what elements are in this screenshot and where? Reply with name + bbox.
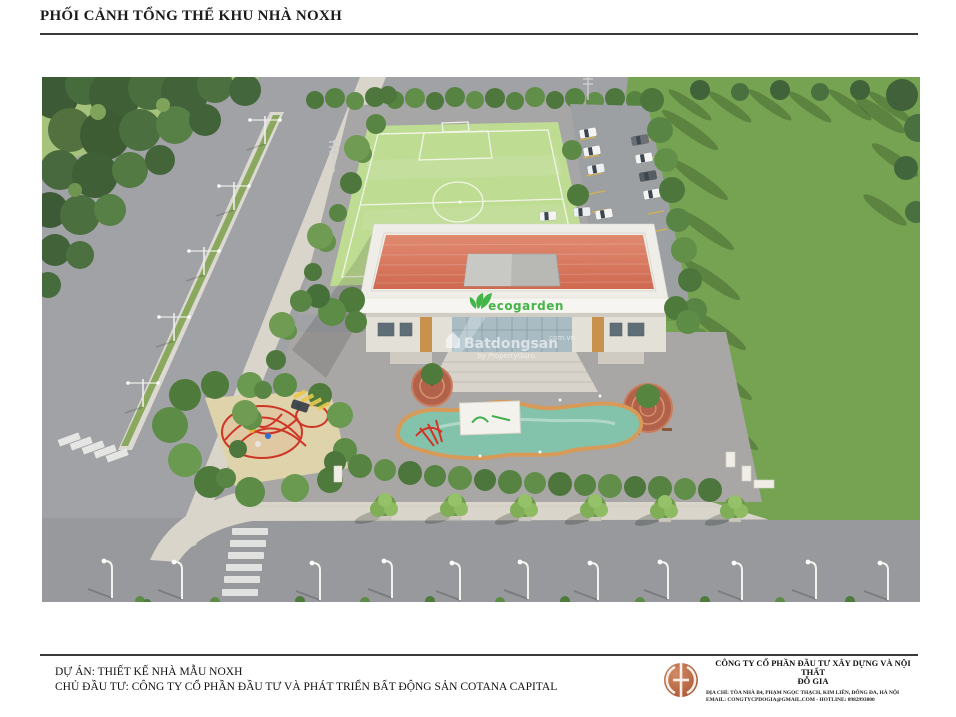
project-line: DỰ ÁN: THIẾT KẾ NHÀ MẪU NOXH xyxy=(55,665,557,680)
wood-panel xyxy=(420,317,432,352)
company-name-line2: ĐỖ GIA xyxy=(706,677,920,686)
company-info: CÔNG TY CỔ PHẦN ĐẦU TƯ XÂY DỰNG VÀ NỘI T… xyxy=(706,659,920,703)
investor-line: CHỦ ĐẦU TƯ: CÔNG TY CỔ PHẦN ĐẦU TƯ VÀ PH… xyxy=(55,680,557,695)
project-info: DỰ ÁN: THIẾT KẾ NHÀ MẪU NOXH CHỦ ĐẦU TƯ:… xyxy=(55,665,557,695)
site-rendering: ecogarden xyxy=(42,77,920,602)
company-contact: EMAIL: CONGTYCPDOGIA@GMAIL.COM - HOTLINE… xyxy=(706,697,920,704)
company-block: CÔNG TY CỔ PHẦN ĐẦU TƯ XÂY DỰNG VÀ NỘI T… xyxy=(662,659,920,703)
dogia-logo-icon xyxy=(662,659,700,701)
company-address: ĐỊA CHỈ: TÒA NHÀ B4, PHẠM NGỌC THẠCH, KI… xyxy=(706,690,920,697)
watermark-domain: .com.vn xyxy=(547,334,575,342)
ecogarden-sign-text: ecogarden xyxy=(488,299,564,313)
watermark-tagline: by PropertyGuru xyxy=(477,352,535,360)
company-name-line1: CÔNG TY CỔ PHẦN ĐẦU TƯ XÂY DỰNG VÀ NỘI T… xyxy=(706,659,920,677)
wood-panel xyxy=(592,317,604,352)
footer-divider xyxy=(40,654,918,656)
drawing-sheet: PHỐI CẢNH TỔNG THỂ KHU NHÀ NOXH xyxy=(0,0,956,717)
title-divider xyxy=(40,33,918,35)
watermark-brand: Batdongsan xyxy=(464,336,558,352)
pool-sign-wall xyxy=(459,401,520,435)
page-title: PHỐI CẢNH TỔNG THỂ KHU NHÀ NOXH xyxy=(40,8,342,25)
roof-skylight xyxy=(464,254,560,286)
